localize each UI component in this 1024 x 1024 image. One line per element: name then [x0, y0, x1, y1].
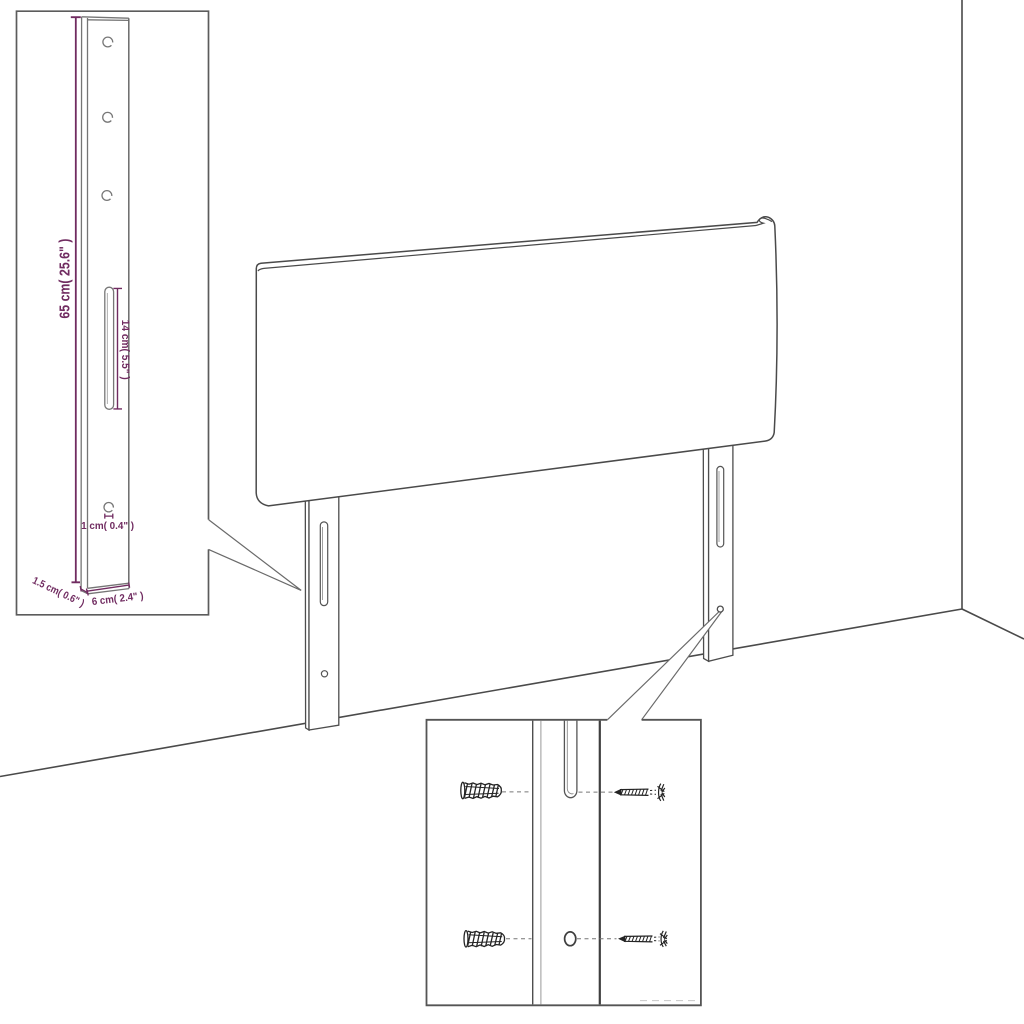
svg-text:65 cm( 25.6" ): 65 cm( 25.6" ) [56, 239, 73, 319]
svg-text:14 cm( 5.5" ): 14 cm( 5.5" ) [119, 320, 131, 380]
svg-text:1 cm( 0.4" ): 1 cm( 0.4" ) [81, 521, 134, 532]
